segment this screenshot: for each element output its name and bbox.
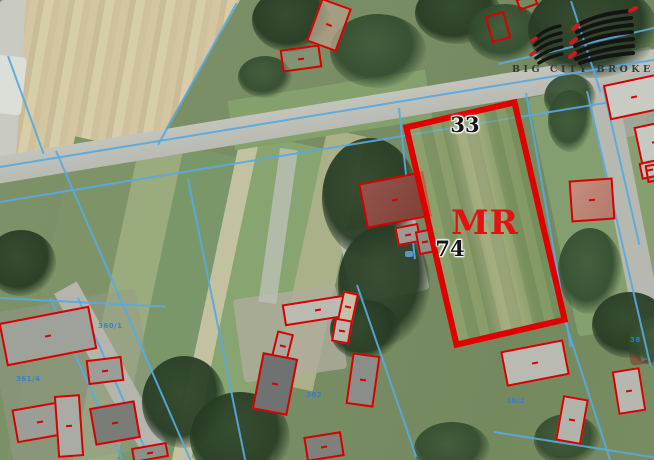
parcel-type-label: MR — [450, 203, 520, 243]
building-outline — [303, 431, 344, 460]
brand-logo: BIG CITY BROKER — [512, 4, 652, 80]
cadastral-number: 38 — [630, 336, 641, 344]
cadastral-number: 38/2 — [506, 397, 525, 405]
brand-logo-text: BIG CITY BROKER — [512, 64, 652, 75]
blue-speck — [405, 251, 413, 257]
parcel-front-number: 33 — [448, 112, 482, 137]
building-outline — [500, 339, 570, 387]
barn-outline — [346, 352, 381, 407]
logo-buildings-icon — [512, 4, 652, 66]
cadastral-number: 361/4 — [16, 375, 41, 383]
building-outline — [89, 400, 141, 445]
building-outline — [54, 394, 84, 458]
building-outline — [612, 367, 647, 415]
house-salmon-roof — [569, 178, 616, 223]
tree — [414, 422, 490, 460]
tree — [548, 90, 592, 152]
cadastral-number: 360/1 — [98, 322, 123, 330]
aerial-map: 33 74 MR 361/4 360/1 302 38/2 38 — [0, 0, 654, 460]
building-outline — [280, 44, 323, 72]
cadastral-number: 302 — [306, 391, 322, 399]
building-outline — [86, 356, 125, 385]
